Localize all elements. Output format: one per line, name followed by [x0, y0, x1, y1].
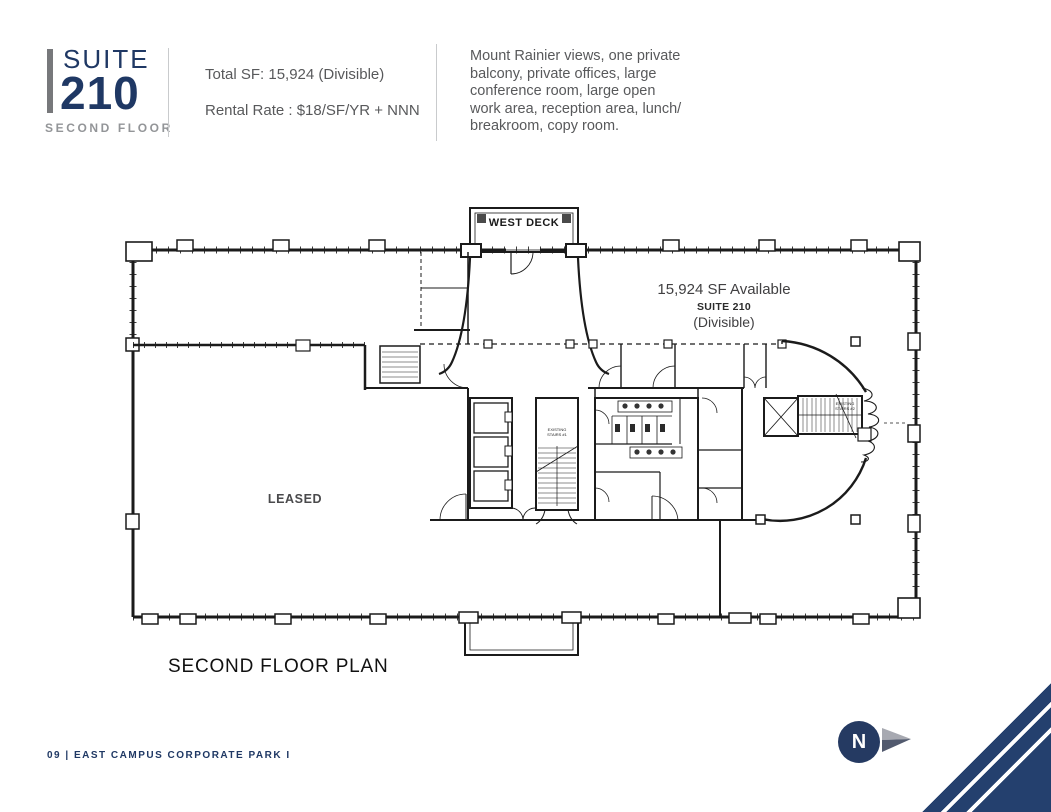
leased-area-label: LEASED	[240, 492, 350, 506]
restrooms	[595, 398, 698, 520]
stairs1-label: STAIRS #1	[547, 432, 567, 437]
floor-plan-drawing: EXISTING STAIRS #1	[0, 0, 1051, 812]
office-row	[420, 340, 786, 388]
north-indicator-icon: N	[838, 721, 880, 763]
available-divisible-text: (Divisible)	[645, 314, 803, 330]
stairs2-label: STAIRS #2	[835, 406, 855, 411]
north-arrow-icon	[882, 726, 916, 754]
available-space-label: 15,924 SF Available SUITE 210 (Divisible…	[645, 281, 803, 330]
core-side-rooms	[595, 388, 742, 520]
footer-page-label: 09 | EAST CAMPUS CORPORATE PARK I	[47, 750, 291, 761]
available-suite-text: SUITE 210	[645, 301, 803, 313]
plan-title: SECOND FLOOR PLAN	[168, 656, 389, 678]
north-letter: N	[852, 731, 866, 754]
west-deck	[439, 208, 609, 374]
elevator-bank	[470, 398, 512, 508]
stairwell-1: EXISTING STAIRS #1	[536, 398, 578, 524]
stairwell-2: EXISTING STAIRS #2	[798, 394, 871, 441]
corner-stripe-decoration	[919, 676, 1051, 812]
available-sf-text: 15,924 SF Available	[645, 281, 803, 298]
west-deck-label: WEST DECK	[470, 217, 578, 229]
northwest-rooms	[380, 252, 470, 383]
flyer-page: SUITE 210 SECOND FLOOR Total SF: 15,924 …	[0, 0, 1051, 812]
shaft-x	[764, 398, 798, 436]
